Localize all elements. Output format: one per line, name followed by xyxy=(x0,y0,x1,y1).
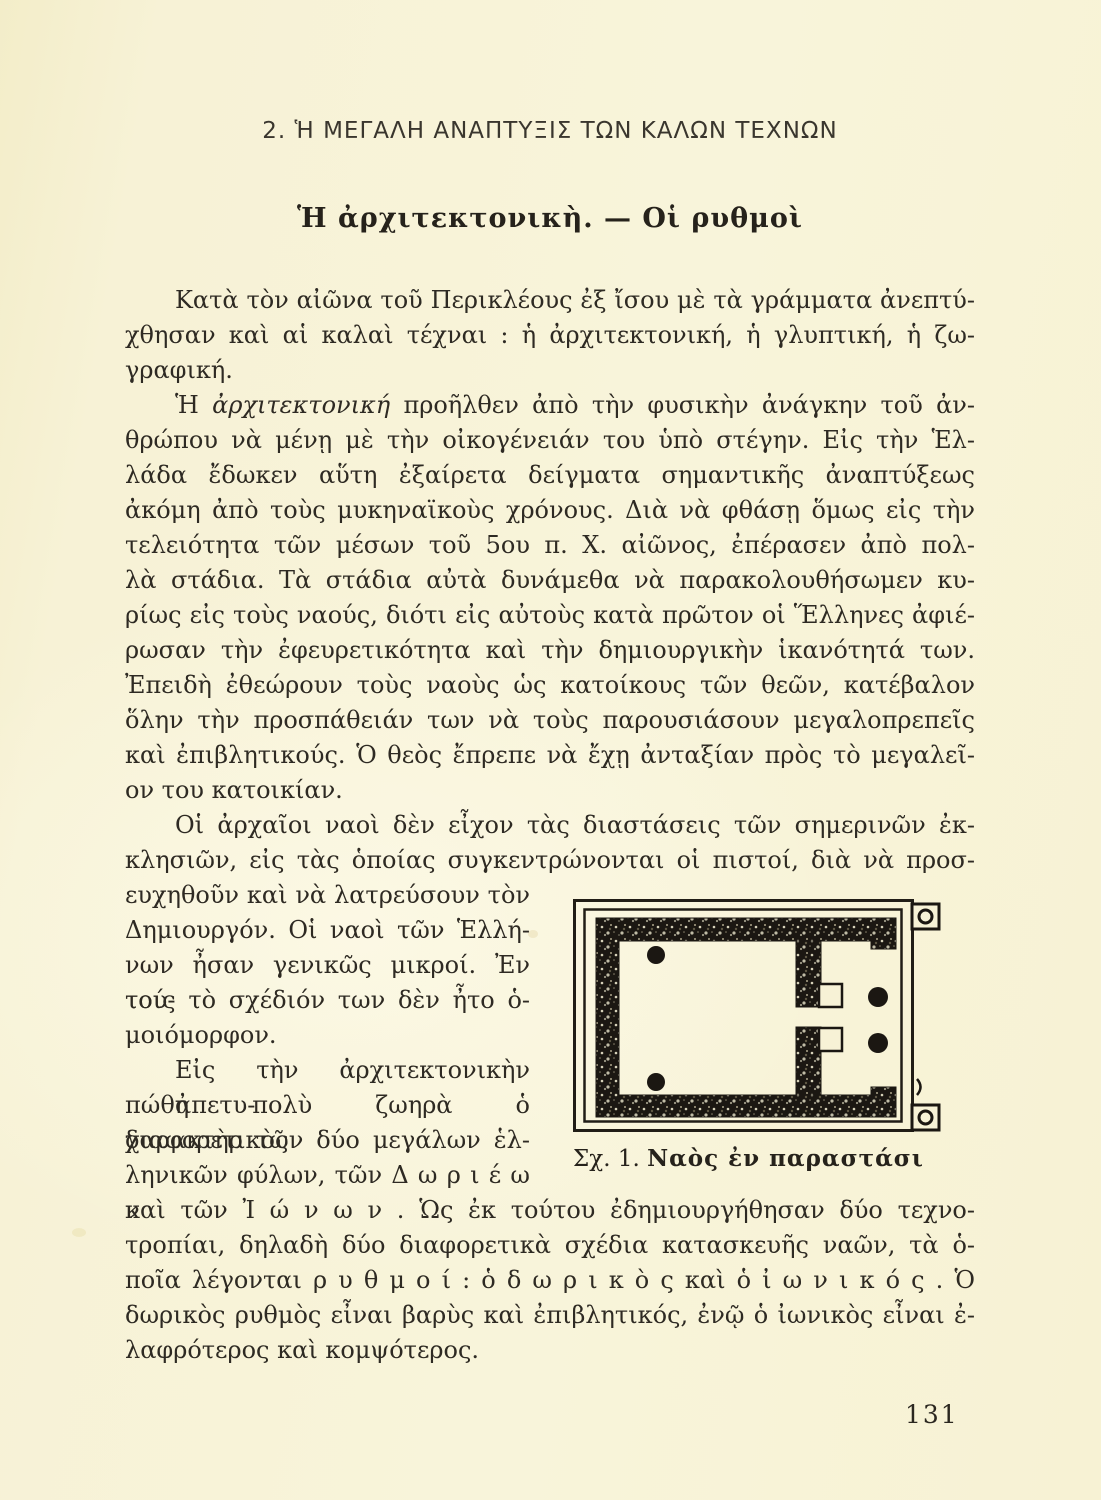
anta-base-top xyxy=(912,904,939,929)
cross-wall-upper xyxy=(796,941,821,1007)
door-jamb-lower xyxy=(819,1028,842,1051)
body-line: Ἐπειδὴ ἐθεώρουν τοὺς ναοὺς ὡς κατοίκους … xyxy=(125,668,975,703)
body-line: λὰ στάδια. Τὰ στάδια αὐτὰ δυνάμεθα νὰ πα… xyxy=(125,563,975,598)
body-line: ρωσαν τὴν ἐφευρετικότητα καὶ τὴν δημιουρ… xyxy=(125,633,975,668)
body-line-segment: Ἡ xyxy=(175,391,212,419)
temple-wall-top xyxy=(596,918,896,949)
body-line: χθησαν καὶ αἱ καλαὶ τέχναι : ἡ ἀρχιτεκτο… xyxy=(125,318,975,353)
body-line: καὶ τῶν Ἰ ώ ν ω ν . Ὡς ἐκ τούτου ἐδημιου… xyxy=(125,1193,975,1228)
body-line: ποῖα λέγονται ρ υ θ μ ο ί : ὁ δ ω ρ ι κ … xyxy=(125,1263,975,1298)
figure-caption-number: Σχ. 1. xyxy=(573,1146,647,1172)
temple-wall-left xyxy=(596,918,619,1117)
cella-column xyxy=(647,946,665,964)
cross-wall-lower xyxy=(796,1027,821,1095)
body-line: Κατὰ τὸν αἰῶνα τοῦ Περικλέους ἐξ ἴσου μὲ… xyxy=(125,283,975,318)
figure-caption-title: Ναὸς ἐν παραστάσι xyxy=(647,1145,924,1172)
body-line: λάδα ἔδωκεν αὕτη ἐξαίρετα δείγματα σημαν… xyxy=(125,458,975,493)
body-line: ὅλην τὴν προσπάθειάν των νὰ τοὺς παρουσι… xyxy=(125,703,975,738)
temple-wall-bottom xyxy=(596,1087,896,1117)
body-line: λαφρότερος καὶ κομψότερος. xyxy=(125,1333,975,1368)
body-line: θρώπου νὰ μένῃ μὲ τὴν οἰκογένειάν του ὑπ… xyxy=(125,423,975,458)
paper-stain xyxy=(72,1228,86,1237)
cella-column xyxy=(647,1073,665,1091)
anta-base-bottom xyxy=(912,1105,939,1130)
temple-plan-figure xyxy=(571,895,943,1139)
chapter-subheading: Ἡ ἀρχιτεκτονικὴ. — Οἱ ρυθμοὶ xyxy=(125,203,975,234)
body-text: Κατὰ τὸν αἰῶνα τοῦ Περικλέους ἐξ ἴσου μὲ… xyxy=(125,283,975,1368)
section-heading: 2. Ἡ ΜΕΓΑΛΗ ΑΝΑΠΤΥΞΙΣ ΤΩΝ ΚΑΛΩΝ ΤΕΧΝΩΝ xyxy=(125,118,975,144)
body-line: καὶ ἐπιβλητικούς. Ὁ θεὸς ἔπρεπε νὰ ἔχῃ ἀ… xyxy=(125,738,975,773)
door-jamb-upper xyxy=(819,984,842,1007)
figure-caption: Σχ. 1. Ναὸς ἐν παραστάσι xyxy=(573,1145,913,1172)
body-line: τροπίαι, δηλαδὴ δύο διαφορετικὰ σχέδια κ… xyxy=(125,1228,975,1263)
body-line: ρίως εἰς τοὺς ναούς, διότι εἰς αὐτοὺς κα… xyxy=(125,598,975,633)
body-line: δωρικὸς ρυθμὸς εἶναι βαρὺς καὶ ἐπιβλητικ… xyxy=(125,1298,975,1333)
italic-term: ἀρχιτεκτονική xyxy=(212,391,390,419)
body-line: Ἡ ἀρχιτεκτονική προῆλθεν ἀπὸ τὴν φυσικὴν… xyxy=(125,388,975,423)
body-line: Οἱ ἀρχαῖοι ναοὶ δὲν εἶχον τὰς διαστάσεις… xyxy=(125,808,975,843)
pronaos-column xyxy=(868,987,888,1007)
body-line: τελειότητα τῶν μέσων τοῦ 5ου π. Χ. αἰῶνο… xyxy=(125,528,975,563)
pronaos-column xyxy=(868,1033,888,1053)
print-mark xyxy=(917,1079,921,1095)
body-line: κλησιῶν, εἰς τὰς ὁποίας συγκεντρώνονται … xyxy=(125,843,975,878)
body-line-segment: προῆλθεν ἀπὸ τὴν φυσικὴν ἀνάγκην τοῦ ἀν- xyxy=(390,391,975,419)
page-number: 131 xyxy=(905,1400,959,1429)
body-line: ον του κατοικίαν. xyxy=(125,773,975,808)
body-line: γραφική. xyxy=(125,353,975,388)
book-page: 2. Ἡ ΜΕΓΑΛΗ ΑΝΑΠΤΥΞΙΣ ΤΩΝ ΚΑΛΩΝ ΤΕΧΝΩΝ Ἡ… xyxy=(0,0,1101,1500)
body-line: ἀκόμη ἀπὸ τοὺς μυκηναϊκοὺς χρόνους. Διὰ … xyxy=(125,493,975,528)
